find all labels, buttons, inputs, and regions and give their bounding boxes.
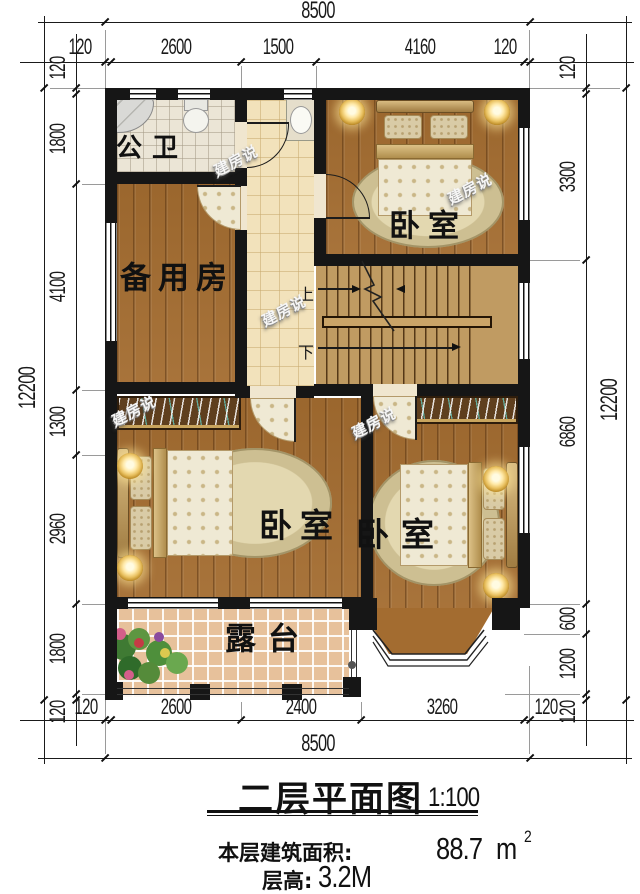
window bbox=[284, 88, 312, 100]
window bbox=[518, 283, 530, 359]
bedside-lamp bbox=[483, 466, 509, 492]
floor-height-value: 3.2M bbox=[318, 859, 371, 894]
room-label-spare: 备用房 bbox=[120, 253, 234, 298]
wall bbox=[105, 382, 235, 394]
extension-line bbox=[361, 702, 362, 718]
bed-blanket-band bbox=[153, 448, 167, 558]
dim-top-total: 8500 bbox=[301, 0, 335, 25]
bedside-lamp bbox=[117, 555, 143, 581]
dim-left-seg: 1300 bbox=[45, 407, 71, 438]
room-label-terrace: 露台 bbox=[225, 614, 311, 659]
dim-right-seg: 600 bbox=[555, 608, 581, 631]
bedside-lamp bbox=[117, 453, 143, 479]
dim-left-seg: 1800 bbox=[45, 124, 71, 155]
room-label-bedroom: 卧室 bbox=[259, 499, 341, 547]
extension-line bbox=[530, 88, 620, 89]
dim-top-seg: 1500 bbox=[263, 34, 294, 60]
pillow bbox=[483, 518, 505, 560]
room-label-bathroom: 公卫 bbox=[116, 128, 188, 165]
dim-right-seg: 1200 bbox=[555, 649, 581, 680]
bed-blanket bbox=[167, 450, 233, 556]
bedside-lamp bbox=[483, 573, 509, 599]
door-leaf bbox=[197, 185, 241, 187]
dim-top-seg: 2600 bbox=[161, 34, 192, 60]
dim-right-seg: 120 bbox=[555, 57, 581, 80]
stair-arrow-icon bbox=[452, 343, 461, 351]
extension-line bbox=[105, 700, 106, 754]
door-opening bbox=[250, 386, 296, 398]
area-exponent: 2 bbox=[524, 827, 531, 847]
room-label-bedroom: 卧室 bbox=[356, 508, 446, 556]
extension-line bbox=[82, 184, 105, 185]
floor-height-label: 层高: bbox=[262, 865, 312, 894]
floor-plan: 上 下 bbox=[0, 0, 640, 894]
terrace-railing bbox=[351, 630, 357, 677]
title-underline bbox=[207, 810, 478, 813]
stair-down-line bbox=[318, 347, 454, 349]
dim-right-seg: 120 bbox=[555, 701, 581, 724]
pillow bbox=[130, 506, 152, 550]
dim-left-seg: 2960 bbox=[45, 514, 71, 545]
stair-break-line bbox=[350, 255, 440, 345]
extension-line bbox=[530, 260, 580, 261]
pillow bbox=[384, 115, 422, 139]
extension-line bbox=[241, 702, 242, 718]
bay-corner bbox=[492, 598, 520, 630]
planter-flowers bbox=[108, 626, 192, 690]
terrace-door-window bbox=[250, 597, 342, 609]
title-underline bbox=[207, 815, 478, 816]
door-leaf bbox=[326, 217, 370, 219]
extension-line bbox=[529, 666, 530, 754]
door-leaf bbox=[415, 396, 417, 440]
extension-line bbox=[241, 66, 242, 88]
extension-line bbox=[82, 390, 105, 391]
bed-blanket-band bbox=[468, 462, 482, 568]
area-unit: m bbox=[496, 831, 516, 867]
bedside-lamp bbox=[339, 99, 365, 125]
area-value: 88.7 bbox=[436, 831, 482, 867]
extension-line bbox=[82, 455, 105, 456]
dim-left-seg: 120 bbox=[45, 701, 71, 724]
dim-left-seg: 120 bbox=[45, 57, 71, 80]
stair-down-label: 下 bbox=[298, 339, 314, 363]
window bbox=[518, 447, 530, 533]
dimension-line bbox=[38, 22, 632, 23]
railing-knob bbox=[348, 661, 356, 669]
terrace-railing bbox=[117, 688, 349, 695]
window bbox=[178, 88, 210, 100]
pillow bbox=[430, 115, 468, 139]
dim-left-total: 12200 bbox=[14, 367, 42, 409]
plan-scale: 1:100 bbox=[428, 782, 479, 813]
window bbox=[518, 128, 530, 220]
dim-bottom-seg: 3260 bbox=[427, 694, 458, 720]
dim-top-seg: 4160 bbox=[405, 34, 436, 60]
bay-corner bbox=[349, 598, 377, 630]
dimension-line bbox=[20, 720, 634, 721]
bed-blanket-band bbox=[376, 144, 474, 159]
dim-right-total: 12200 bbox=[596, 379, 624, 421]
dim-bottom-seg: 120 bbox=[75, 694, 98, 720]
dimension-line bbox=[626, 16, 627, 764]
dim-bottom-total: 8500 bbox=[301, 730, 335, 758]
door-leaf bbox=[294, 398, 296, 442]
dim-left-seg: 1800 bbox=[45, 634, 71, 665]
dimension-line bbox=[586, 34, 587, 746]
dim-bottom-seg: 2600 bbox=[161, 694, 192, 720]
stair-arrow-icon bbox=[396, 285, 405, 293]
door-leaf bbox=[247, 122, 289, 124]
dim-left-seg: 4100 bbox=[45, 272, 71, 303]
bedside-lamp bbox=[484, 99, 510, 125]
extension-line bbox=[50, 88, 105, 89]
window bbox=[130, 88, 156, 100]
dimension-line bbox=[20, 62, 634, 63]
dim-top-seg: 120 bbox=[69, 34, 92, 60]
window bbox=[128, 597, 218, 609]
dim-top-seg: 120 bbox=[494, 34, 517, 60]
dimension-line bbox=[38, 758, 632, 759]
door-opening bbox=[314, 174, 326, 218]
stair-arrow-icon bbox=[352, 285, 361, 293]
door-opening bbox=[373, 384, 417, 396]
dim-right-seg: 3300 bbox=[555, 162, 581, 193]
bed-headboard bbox=[376, 100, 474, 113]
extension-line bbox=[82, 604, 105, 605]
extension-line bbox=[316, 66, 317, 88]
sink-basin bbox=[290, 106, 312, 134]
window bbox=[105, 223, 117, 341]
dim-right-seg: 6860 bbox=[555, 417, 581, 448]
wall bbox=[105, 88, 530, 100]
